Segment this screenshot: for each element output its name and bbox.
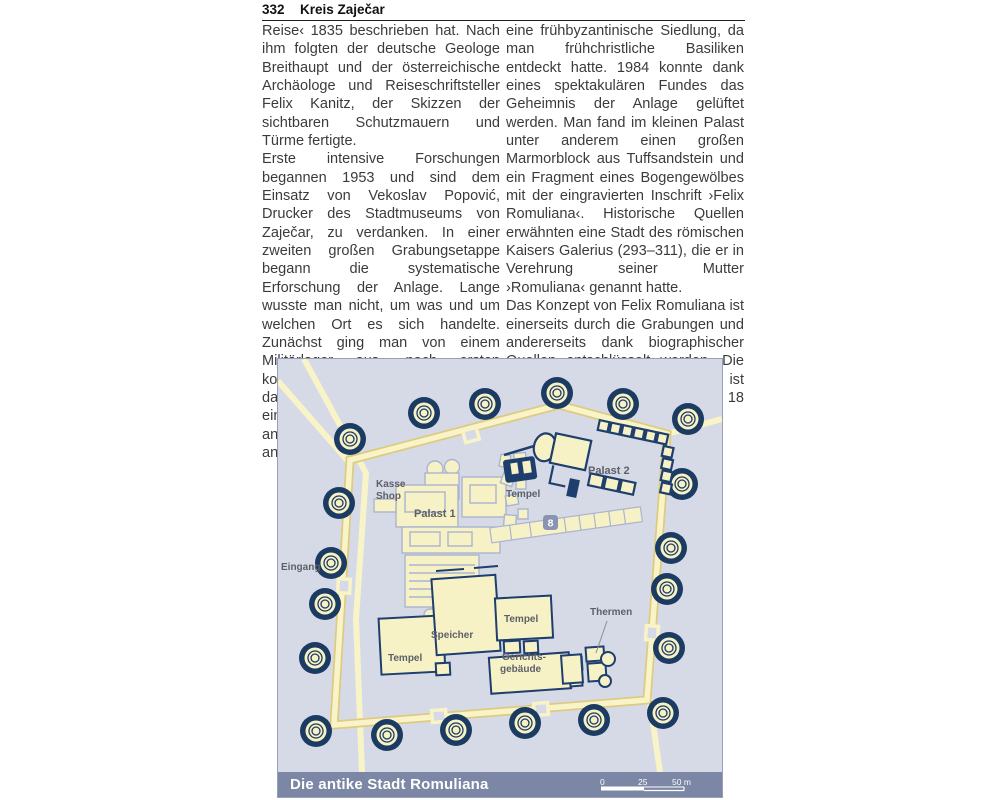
section-title: Kreis Zaječar (300, 2, 385, 17)
map-label-palast1: Palast 1 (414, 508, 456, 520)
fortress-tower (651, 573, 683, 605)
svg-text:8: 8 (548, 518, 554, 530)
fortress-tower (309, 588, 341, 620)
fortress-tower (323, 487, 355, 519)
fortress-tower (607, 388, 639, 420)
fortress-tower (299, 642, 331, 674)
map-label-thermen: Thermen (590, 607, 632, 618)
marker-8-badge: 8 (543, 515, 558, 530)
map-label-tempel-mitte: Tempel (504, 614, 538, 625)
site-map: 8 Eingan (277, 358, 723, 798)
map-label-tempel-west: Tempel (388, 653, 422, 664)
fortress-tower (334, 423, 366, 455)
fortress-tower (408, 397, 440, 429)
fortress-tower (371, 719, 403, 751)
map-label-shop: Shop (376, 491, 401, 502)
scale-label-end: 50 m (672, 777, 691, 787)
paragraph: Reise‹ 1835 beschrieben hat. Nach ihm fo… (262, 22, 500, 150)
fortress-map: 8 Eingan (278, 359, 722, 772)
map-label-kasse: Kasse (376, 479, 406, 490)
page-header: 332Kreis Zaječar (262, 2, 745, 21)
scale-label-mid: 25 (638, 777, 648, 787)
building-speicher (431, 575, 500, 655)
scale-bar: 0 25 50 m (598, 777, 694, 793)
map-label-gerichts-1: Gerichts- (502, 652, 546, 663)
fortress-tower (469, 388, 501, 420)
scale-label-start: 0 (600, 777, 605, 787)
map-label-tempel-nord: Tempel (506, 489, 540, 500)
map-label-palast2: Palast 2 (588, 465, 630, 477)
paragraph: eine frühbyzantinische Siedlung, da man … (506, 22, 744, 297)
map-label-gerichts-2: gebäude (500, 664, 542, 675)
fortress-tower (509, 707, 541, 739)
fortress-tower (653, 632, 685, 664)
north-gate (463, 427, 480, 442)
map-caption-title: Die antike Stadt Romuliana (290, 776, 489, 793)
fortress-tower (672, 403, 704, 435)
fortress-tower (440, 714, 472, 746)
fortress-tower (300, 715, 332, 747)
map-caption-bar: Die antike Stadt Romuliana 0 25 50 m (278, 772, 722, 797)
page-number: 332 (262, 2, 300, 17)
fortress-tower (647, 697, 679, 729)
fortress-tower (578, 704, 610, 736)
map-label-eingang: Eingang (281, 562, 320, 573)
fortress-tower (655, 532, 687, 564)
fortress-tower (541, 377, 573, 409)
west-gate (338, 579, 351, 594)
map-label-speicher: Speicher (431, 630, 473, 641)
